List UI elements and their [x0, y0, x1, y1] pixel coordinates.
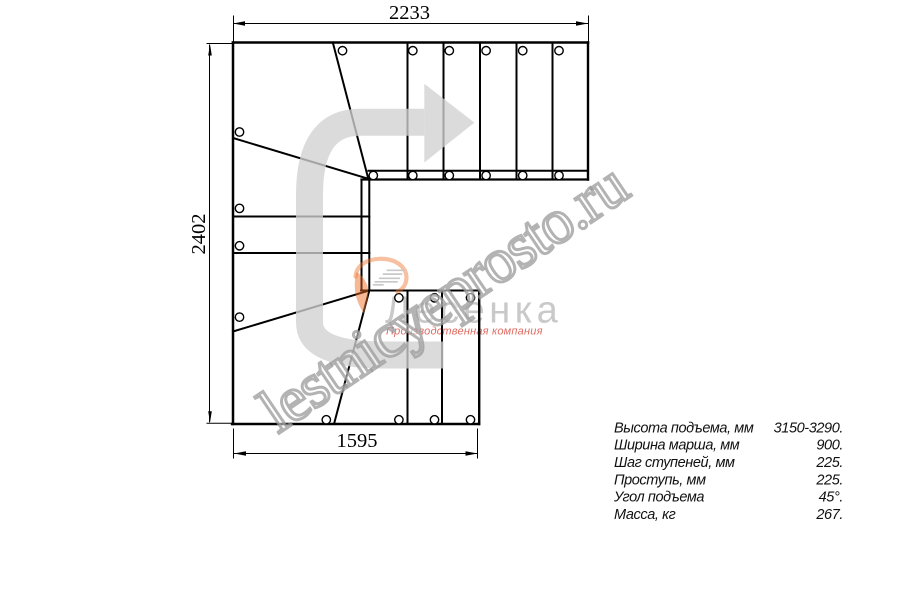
svg-text:Шаг ступеней, мм: Шаг ступеней, мм	[614, 455, 735, 471]
svg-text:3150-3290.: 3150-3290.	[774, 420, 843, 436]
svg-text:225.: 225.	[815, 472, 843, 488]
svg-text:2402: 2402	[188, 214, 210, 255]
svg-text:2233: 2233	[389, 2, 430, 24]
svg-text:267.: 267.	[815, 507, 843, 523]
svg-text:Ширина марша, мм: Ширина марша, мм	[614, 438, 740, 454]
svg-text:900.: 900.	[816, 438, 843, 454]
svg-text:Проступь, мм: Проступь, мм	[614, 472, 706, 488]
svg-text:Высота подъема, мм: Высота подъема, мм	[614, 420, 754, 436]
svg-text:1595: 1595	[337, 430, 378, 452]
svg-text:Угол подъема: Угол подъема	[613, 490, 704, 506]
svg-text:45°.: 45°.	[819, 490, 843, 506]
svg-text:Масса, кг: Масса, кг	[614, 507, 676, 523]
svg-text:225.: 225.	[815, 455, 843, 471]
